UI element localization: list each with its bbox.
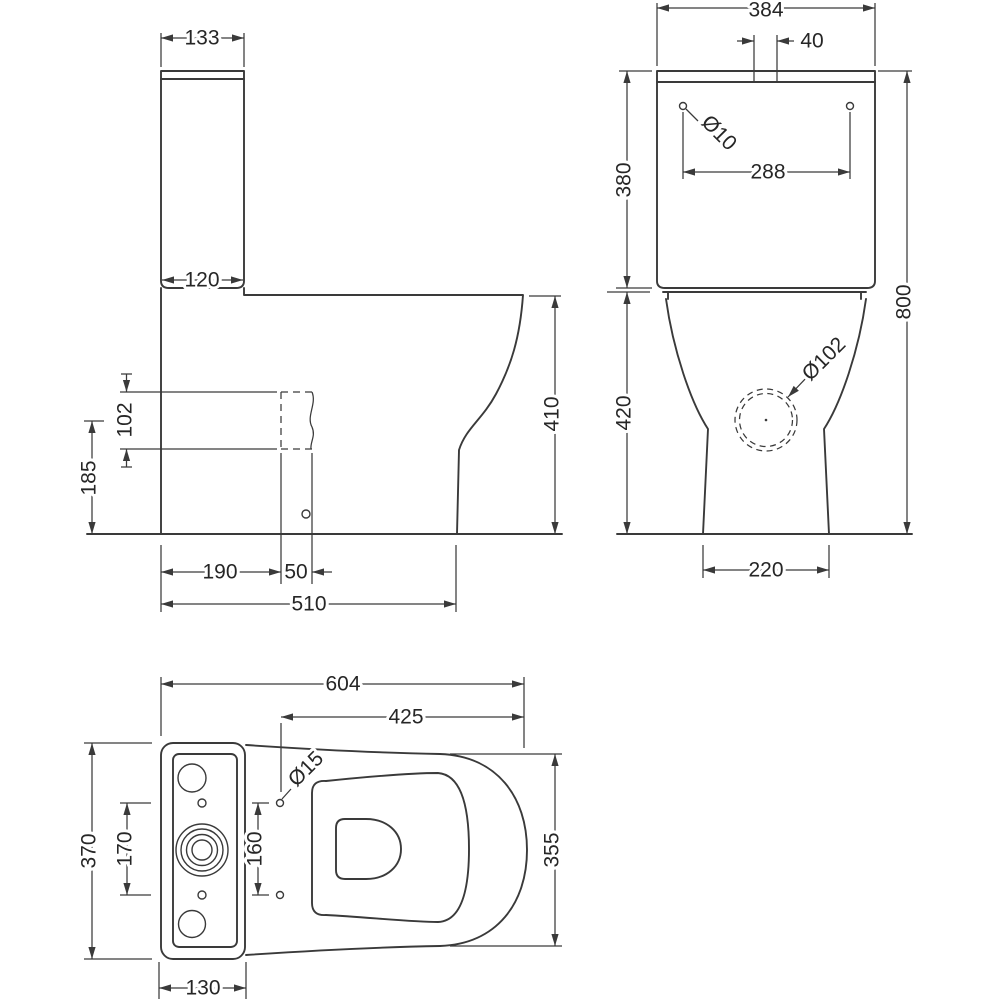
plan-bowl-front-arc: [440, 754, 527, 946]
cistern-fixing-hole-left: [680, 103, 687, 110]
dim-outlet-height: 102: [114, 402, 137, 437]
dim-outlet-centre-height: 185: [78, 460, 101, 495]
dim-outlet-depth: 50: [284, 561, 307, 584]
front-pan-rim: [663, 292, 866, 299]
plan-view: Ø15 604 425 370 170 160 355 130: [78, 673, 564, 1000]
dim-fixing-hole-diameter: Ø10: [697, 111, 741, 155]
outlet-centre-dot: [765, 419, 768, 422]
dim-cistern-depth-top: 133: [184, 27, 219, 50]
dim-overall-width: 370: [78, 833, 101, 868]
side-cistern-outline: [161, 71, 244, 288]
dim-pan-height-side: 410: [541, 396, 564, 431]
side-fixing-hole: [302, 510, 310, 518]
outlet-break-line: [310, 392, 313, 449]
dim-base-width: 220: [748, 559, 783, 582]
dim-fixing-hole-centres: 288: [750, 161, 785, 184]
plan-inner-bowl: [336, 819, 401, 879]
dim-seat-hole-centres: 160: [244, 831, 267, 866]
dim-overall-depth-side: 510: [291, 593, 326, 616]
cistern-port-top: [178, 764, 206, 792]
leader-seat-hole: [282, 789, 291, 799]
cistern-fixing-hole-right: [847, 103, 854, 110]
dim-outlet-diameter: Ø102: [798, 333, 851, 386]
plan-bowl-bottom-edge: [246, 946, 440, 955]
cistern-bolt-hole-top: [198, 799, 206, 807]
dim-cistern-depth-bottom: 120: [184, 269, 219, 292]
leader-outlet: [788, 376, 808, 397]
flush-valve-ring-4: [192, 840, 212, 860]
dim-overall-depth-plan: 604: [325, 673, 360, 696]
leader-fixing-hole: [686, 109, 698, 121]
dim-cistern-hole-centres: 170: [114, 831, 137, 866]
outlet-hidden-dashed: [281, 392, 312, 449]
dim-flush-button-width: 40: [800, 30, 823, 53]
dim-seat-holes-to-front: 425: [388, 706, 423, 729]
side-view: 133 120 102 185 190 50 510 410: [78, 27, 564, 616]
cistern-port-bottom: [179, 911, 206, 938]
dim-seat-hole-diameter: Ø15: [284, 747, 328, 791]
cistern-bolt-hole-bottom: [198, 891, 206, 899]
seat-hole-top: [277, 800, 284, 807]
dim-overall-height: 800: [893, 284, 916, 319]
dim-pan-height-front: 420: [613, 395, 636, 430]
plan-bowl-top-edge: [246, 745, 440, 754]
seat-hole-bottom: [277, 892, 284, 899]
dim-cistern-height: 380: [613, 162, 636, 197]
side-pan-profile: [244, 288, 523, 534]
toilet-dimension-drawing: 133 120 102 185 190 50 510 410: [0, 0, 1000, 1000]
front-pan-left-profile: [666, 299, 708, 534]
dim-cistern-width: 384: [748, 0, 783, 22]
front-pan-right-profile: [824, 299, 866, 534]
dim-bowl-width: 355: [541, 832, 564, 867]
dim-outlet-setback: 190: [202, 561, 237, 584]
front-view: Ø10 288 40 384 380 Ø102 420 220: [607, 0, 916, 582]
technical-drawing-page: 133 120 102 185 190 50 510 410: [0, 0, 1000, 1000]
flush-button-ticks: [754, 35, 777, 82]
dim-cistern-plan-depth: 130: [185, 977, 220, 1000]
